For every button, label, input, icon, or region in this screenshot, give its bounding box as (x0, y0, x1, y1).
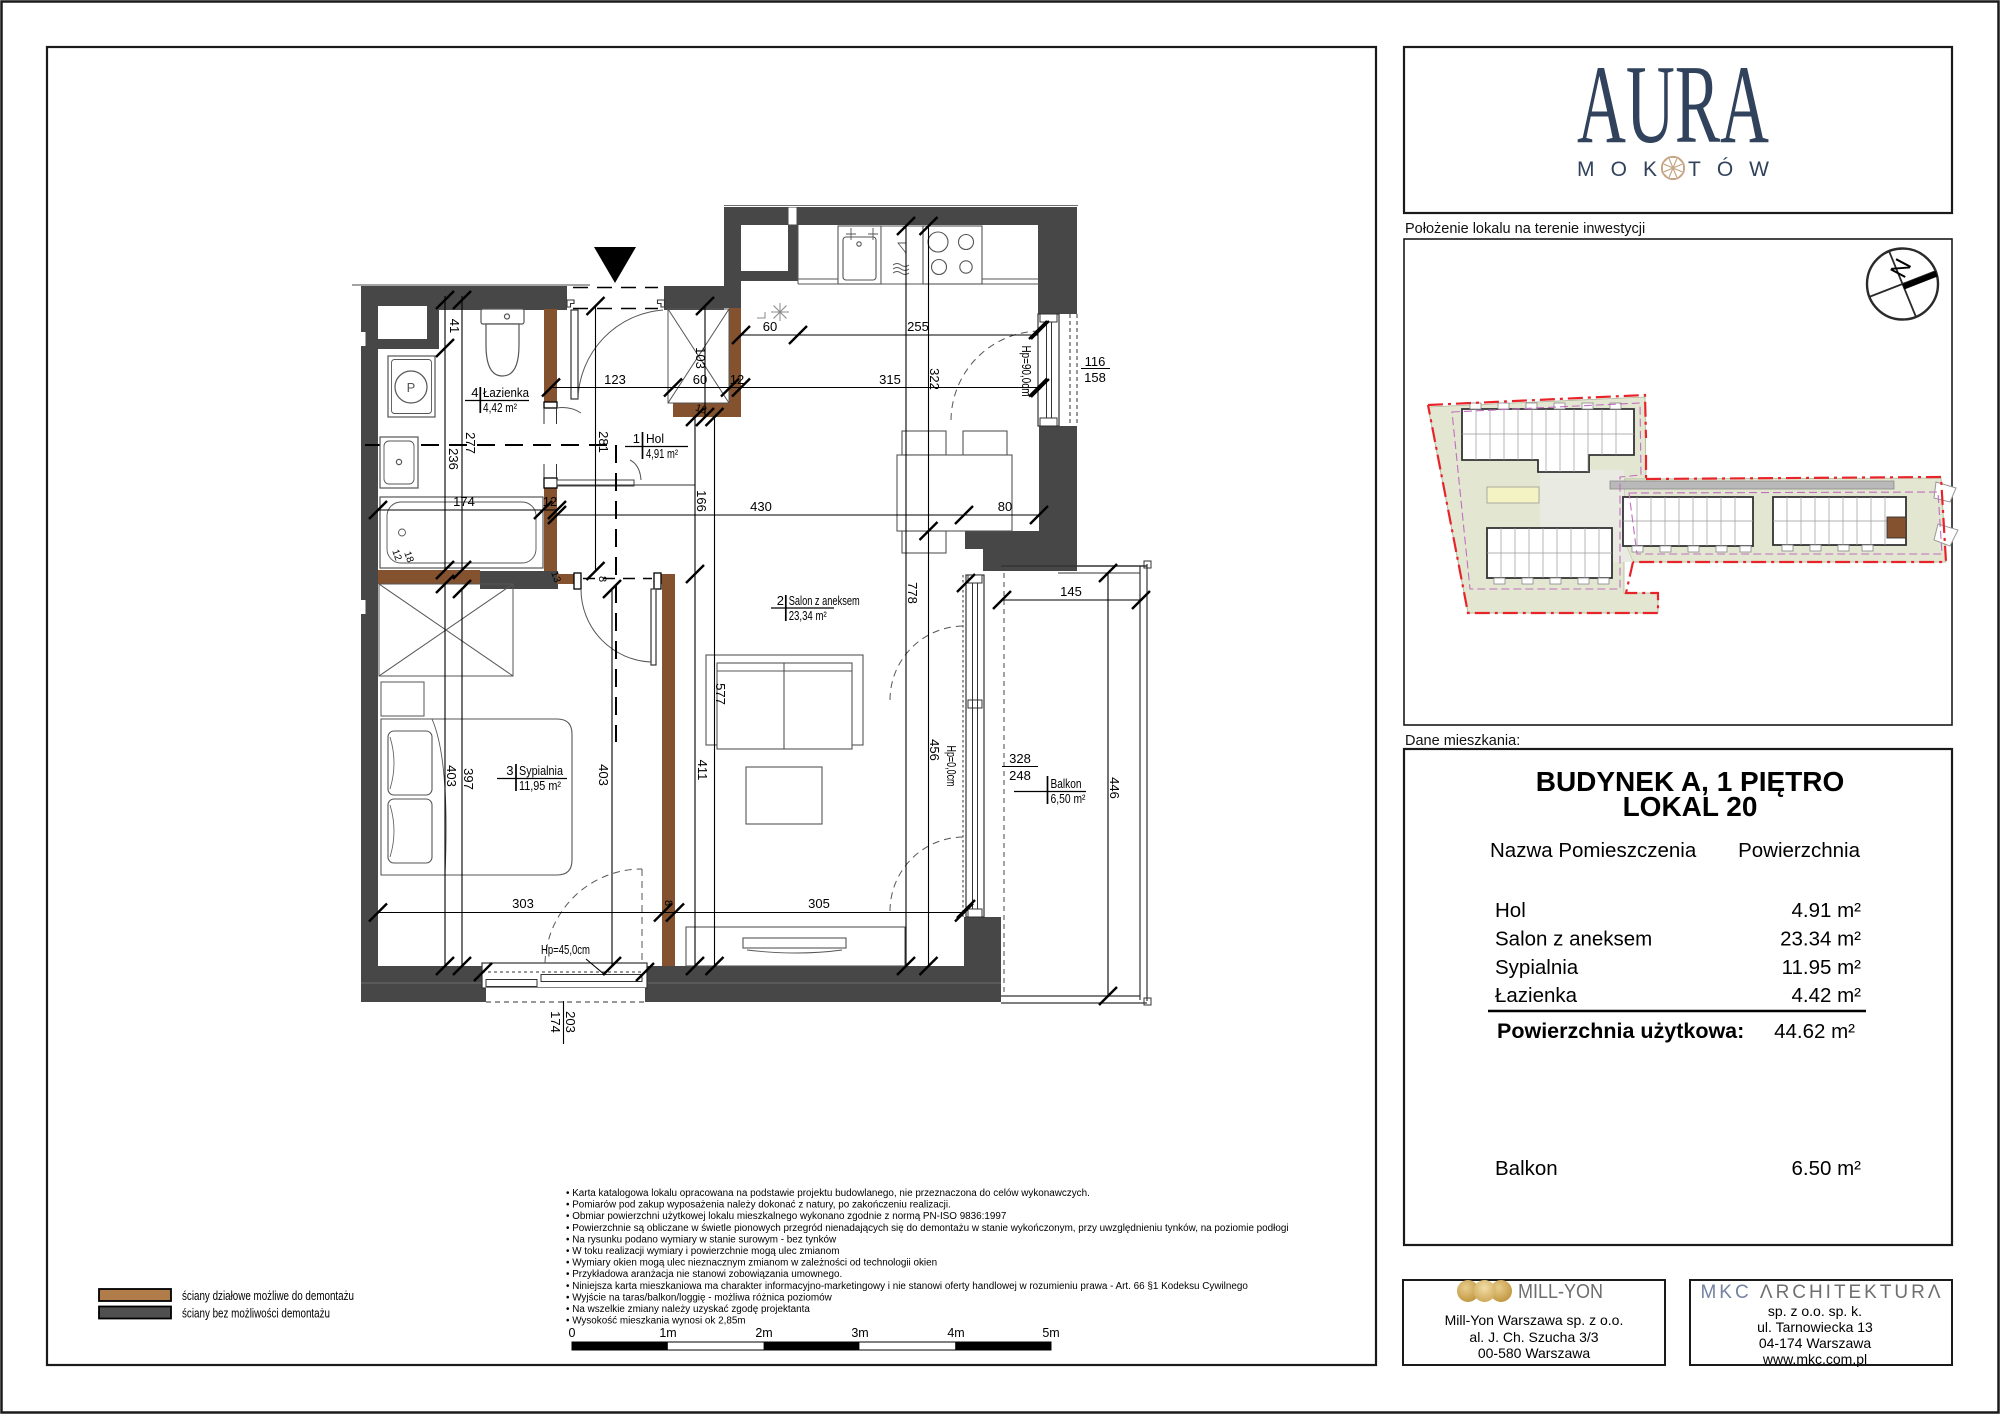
svg-text:166: 166 (694, 490, 709, 512)
svg-text:41: 41 (447, 319, 462, 333)
svg-text:3m: 3m (851, 1326, 868, 1340)
svg-text:2: 2 (777, 593, 784, 608)
svg-text:2m: 2m (755, 1326, 772, 1340)
svg-text:315: 315 (879, 372, 901, 387)
svg-text:Balkon: Balkon (1495, 1157, 1558, 1180)
svg-text:44.62 m²: 44.62 m² (1774, 1020, 1855, 1043)
svg-text:ściany bez możliwości demontaż: ściany bez możliwości demontażu (182, 1307, 330, 1321)
svg-text:Powierzchnia użytkowa:: Powierzchnia użytkowa: (1497, 1019, 1744, 1043)
svg-text:281: 281 (596, 431, 611, 453)
svg-text:3: 3 (506, 763, 513, 778)
svg-text:12: 12 (730, 372, 744, 387)
svg-text:• Wymiary okien mogą ulec niez: • Wymiary okien mogą ulec nieznacznym zm… (566, 1258, 937, 1269)
svg-text:• Na wszelkie zmiany należy uz: • Na wszelkie zmiany należy uzyskać zgod… (566, 1304, 810, 1315)
svg-text:LOKAL 20: LOKAL 20 (1623, 791, 1758, 822)
svg-text:Łazienka: Łazienka (1495, 984, 1578, 1007)
svg-text:5m: 5m (1042, 1326, 1059, 1340)
svg-text:• Pomiarów pod zakup wyposażen: • Pomiarów pod zakup wyposażenia należy … (566, 1200, 951, 1211)
svg-text:23.34 m²: 23.34 m² (1780, 928, 1861, 951)
svg-text:1m: 1m (659, 1326, 676, 1340)
svg-text:Sypialnia: Sypialnia (1495, 956, 1579, 979)
svg-text:103: 103 (693, 347, 708, 369)
svg-text:Salon z aneksem: Salon z aneksem (1495, 928, 1652, 951)
svg-text:116: 116 (1085, 354, 1106, 369)
svg-text:• Karta katalogowa lokalu opra: • Karta katalogowa lokalu opracowana na … (566, 1188, 1090, 1199)
svg-text:305: 305 (808, 896, 830, 911)
svg-text:Balkon: Balkon (1051, 776, 1082, 791)
svg-text:Hp=0,0cm: Hp=0,0cm (944, 746, 959, 787)
svg-text:Sypialnia: Sypialnia (519, 763, 564, 778)
svg-text:MKC ΛRCHITEKTURΛ: MKC ΛRCHITEKTURΛ (1701, 1282, 1944, 1303)
svg-text:403: 403 (596, 764, 611, 786)
svg-text:Hol: Hol (646, 431, 664, 446)
svg-text:• Obmiar powierzchni użytkowej: • Obmiar powierzchni użytkowej lokalu mi… (566, 1211, 1006, 1222)
svg-text:sp. z o.o. sp. k.: sp. z o.o. sp. k. (1768, 1303, 1862, 1319)
svg-text:446: 446 (1107, 777, 1122, 799)
svg-text:Mill-Yon Warszawa sp. z o.o.: Mill-Yon Warszawa sp. z o.o. (1445, 1312, 1624, 1328)
svg-text:AURA: AURA (1577, 43, 1769, 167)
svg-text:P: P (407, 380, 416, 395)
svg-text:80: 80 (998, 499, 1012, 514)
svg-text:403: 403 (444, 765, 459, 787)
svg-text:174: 174 (548, 1011, 563, 1033)
svg-text:MILL-YON: MILL-YON (1518, 1280, 1603, 1303)
svg-text:• Wyjście na taras/balkon/logg: • Wyjście na taras/balkon/loggię - możli… (566, 1292, 833, 1303)
svg-text:1: 1 (633, 431, 640, 446)
svg-text:158: 158 (1084, 370, 1106, 385)
svg-text:303: 303 (512, 896, 534, 911)
svg-text:8: 8 (662, 900, 674, 906)
svg-text:0: 0 (569, 1326, 576, 1340)
svg-text:248: 248 (1009, 768, 1031, 783)
svg-text:456: 456 (927, 739, 942, 761)
svg-text:145: 145 (1060, 584, 1082, 599)
svg-text:430: 430 (750, 499, 772, 514)
svg-text:Hp=45,0cm: Hp=45,0cm (541, 942, 590, 957)
svg-text:• Niniejsza karta mieszkaniowa: • Niniejsza karta mieszkaniowa ma charak… (566, 1281, 1248, 1292)
svg-text:04-174 Warszawa: 04-174 Warszawa (1759, 1335, 1872, 1351)
svg-text:236: 236 (446, 448, 461, 470)
svg-text:• Wysokość mieszkania wynosi o: • Wysokość mieszkania wynosi ok 2,85m (566, 1316, 746, 1327)
svg-text:6.50 m²: 6.50 m² (1792, 1157, 1862, 1180)
svg-text:60: 60 (763, 319, 777, 334)
svg-text:411: 411 (695, 760, 710, 781)
svg-text:23,34 m²: 23,34 m² (789, 608, 827, 623)
svg-text:ściany działowe możliwe do dem: ściany działowe możliwe do demontażu (182, 1289, 354, 1303)
svg-text:12: 12 (543, 494, 557, 509)
svg-text:• Powierzchnie są obliczane w: • Powierzchnie są obliczane w świetle pi… (566, 1223, 1289, 1234)
svg-text:4.42 m²: 4.42 m² (1792, 984, 1862, 1007)
svg-text:Hp=90,0cm: Hp=90,0cm (1019, 346, 1034, 397)
svg-text:Hol: Hol (1495, 899, 1526, 922)
svg-text:277: 277 (463, 432, 478, 454)
svg-text:123: 123 (604, 372, 626, 387)
svg-text:Salon z aneksem: Salon z aneksem (789, 593, 860, 608)
svg-text:397: 397 (461, 768, 476, 790)
svg-text:174: 174 (453, 494, 475, 509)
svg-text:Nazwa Pomieszczenia: Nazwa Pomieszczenia (1490, 839, 1697, 862)
svg-text:• Na rysunku podano wymiary w: • Na rysunku podano wymiary w stanie sur… (566, 1234, 837, 1245)
svg-text:6,50 m²: 6,50 m² (1051, 791, 1087, 806)
svg-text:11.95 m²: 11.95 m² (1782, 956, 1862, 979)
svg-text:4,91 m²: 4,91 m² (646, 446, 678, 461)
svg-text:60: 60 (693, 372, 707, 387)
svg-text:4m: 4m (947, 1326, 964, 1340)
svg-text:al. J. Ch. Szucha 3/3: al. J. Ch. Szucha 3/3 (1469, 1329, 1598, 1345)
svg-text:Położenie lokalu na terenie in: Położenie lokalu na terenie inwestycji (1405, 221, 1645, 237)
svg-text:Dane mieszkania:: Dane mieszkania: (1405, 733, 1520, 749)
svg-text:MOK: MOK (1577, 158, 1657, 181)
svg-text:00-580 Warszawa: 00-580 Warszawa (1478, 1345, 1591, 1361)
svg-text:Powierzchnia: Powierzchnia (1738, 839, 1861, 862)
svg-text:4: 4 (471, 385, 478, 400)
svg-text:11,95 m²: 11,95 m² (519, 778, 562, 793)
svg-text:4,42 m²: 4,42 m² (483, 400, 518, 415)
svg-text:www.mkc.com.pl: www.mkc.com.pl (1762, 1351, 1867, 1367)
svg-text:322: 322 (927, 368, 942, 390)
svg-text:• W toku realizacji wymiary i: • W toku realizacji wymiary i powierzchn… (566, 1246, 839, 1257)
svg-text:TÓW: TÓW (1688, 158, 1769, 181)
svg-text:ul. Tarnowiecka 13: ul. Tarnowiecka 13 (1757, 1319, 1873, 1335)
svg-text:328: 328 (1009, 751, 1031, 766)
svg-text:255: 255 (907, 319, 929, 334)
svg-text:203: 203 (563, 1011, 578, 1033)
svg-text:577: 577 (713, 683, 728, 705)
svg-text:778: 778 (905, 582, 920, 604)
svg-text:8: 8 (596, 576, 608, 582)
svg-text:• Przykładowa aranżacja nie st: • Przykładowa aranżacja nie stanowi zobo… (566, 1269, 842, 1280)
svg-text:4.91 m²: 4.91 m² (1792, 899, 1862, 922)
svg-text:Łazienka: Łazienka (483, 385, 530, 400)
